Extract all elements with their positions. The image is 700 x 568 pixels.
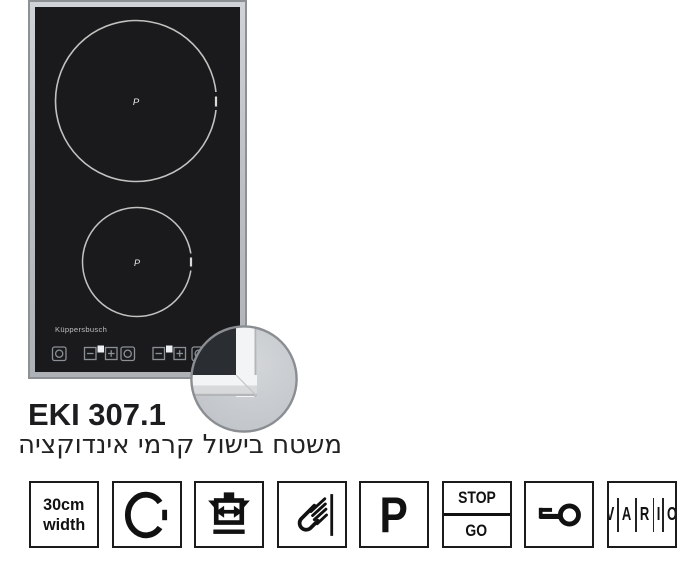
- touch-hand-icon: [283, 486, 341, 544]
- feature-box-cooking-zone: [112, 481, 182, 548]
- power-boost-label: P: [380, 490, 408, 540]
- product-description-hebrew: משטח בישול קרמי אינדוקציה: [18, 430, 342, 460]
- vario-letter: I: [656, 504, 660, 525]
- vario-letter: V: [607, 504, 615, 525]
- power-button-icon: [53, 347, 67, 361]
- vario-bar: [653, 498, 655, 532]
- feature-box-child-lock: [524, 481, 594, 548]
- key-icon: [530, 486, 588, 544]
- product-model-title: EKI 307.1: [28, 397, 166, 433]
- zone-label-bottom: P: [134, 258, 140, 268]
- minus-plus-display: [153, 346, 186, 360]
- vario-logo: V A R I O: [607, 498, 677, 532]
- vario-bar: [662, 498, 664, 532]
- vario-bar: [635, 498, 637, 532]
- frame-corner-detail-icon: [189, 324, 299, 434]
- vario-letter: O: [667, 504, 676, 525]
- vario-letter: A: [622, 504, 631, 525]
- go-label: GO: [466, 521, 488, 541]
- stop-label: STOP: [458, 488, 496, 508]
- feature-box-pan-recognition: [194, 481, 264, 548]
- power-button-icon: [121, 347, 135, 361]
- glass-closeup: [189, 324, 236, 375]
- zone-circle-icon: [118, 486, 176, 544]
- pot-arrows-icon: [200, 486, 258, 544]
- feature-box-power-boost: P: [359, 481, 429, 548]
- cooktop-photo: P P Küppersbusch: [28, 0, 247, 379]
- zone-label-top: P: [133, 97, 140, 108]
- minus-plus-display: [85, 346, 118, 360]
- vario-letter: R: [640, 504, 649, 525]
- cooktop-graphics: P P Küppersbusch: [35, 7, 240, 372]
- feature-box-vario: V A R I O: [607, 481, 677, 548]
- feature-box-30cm-width: 30cm width: [29, 481, 99, 548]
- ceramic-glass-surface: P P Küppersbusch: [35, 7, 240, 372]
- width-label-line2: width: [43, 515, 85, 534]
- feature-box-touch-control: [277, 481, 347, 548]
- width-label-line1: 30cm: [43, 495, 84, 514]
- vario-bar: [617, 498, 619, 532]
- catalog-page: P P Küppersbusch: [0, 0, 700, 568]
- touch-controls: [53, 346, 206, 361]
- feature-box-stop-go: STOP GO: [442, 481, 512, 548]
- brand-logo: Küppersbusch: [55, 325, 107, 334]
- frame-detail-inset: [189, 324, 299, 434]
- feature-icon-row: 30cm width: [29, 481, 677, 548]
